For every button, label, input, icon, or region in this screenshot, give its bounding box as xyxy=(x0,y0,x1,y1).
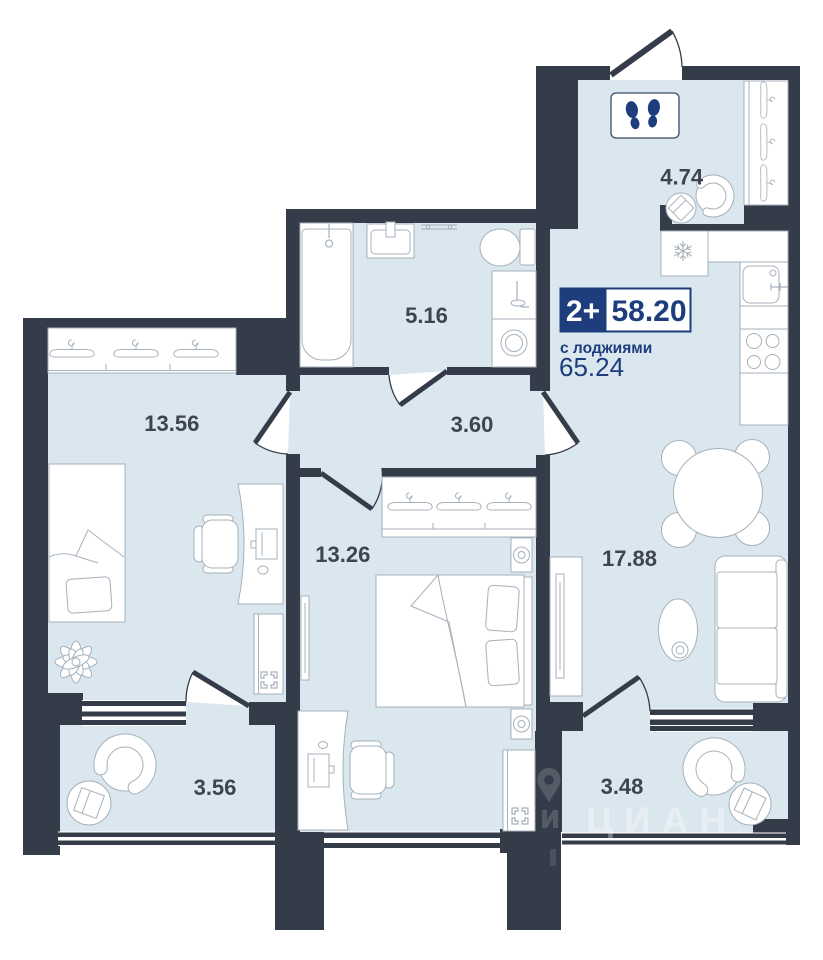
svg-text:5.16: 5.16 xyxy=(405,303,448,328)
svg-text:13.26: 13.26 xyxy=(315,542,370,567)
svg-text:3.60: 3.60 xyxy=(451,412,494,437)
svg-text:58.20: 58.20 xyxy=(611,295,686,328)
svg-text:13.56: 13.56 xyxy=(144,411,199,436)
svg-text:65.24: 65.24 xyxy=(559,352,624,382)
svg-text:3.48: 3.48 xyxy=(601,774,644,799)
svg-text:ЦИАН: ЦИАН xyxy=(586,800,737,841)
svg-text:3.56: 3.56 xyxy=(194,775,237,800)
svg-text:4.74: 4.74 xyxy=(660,165,704,190)
svg-text:2+: 2+ xyxy=(566,295,600,328)
svg-text:17.88: 17.88 xyxy=(602,546,657,571)
